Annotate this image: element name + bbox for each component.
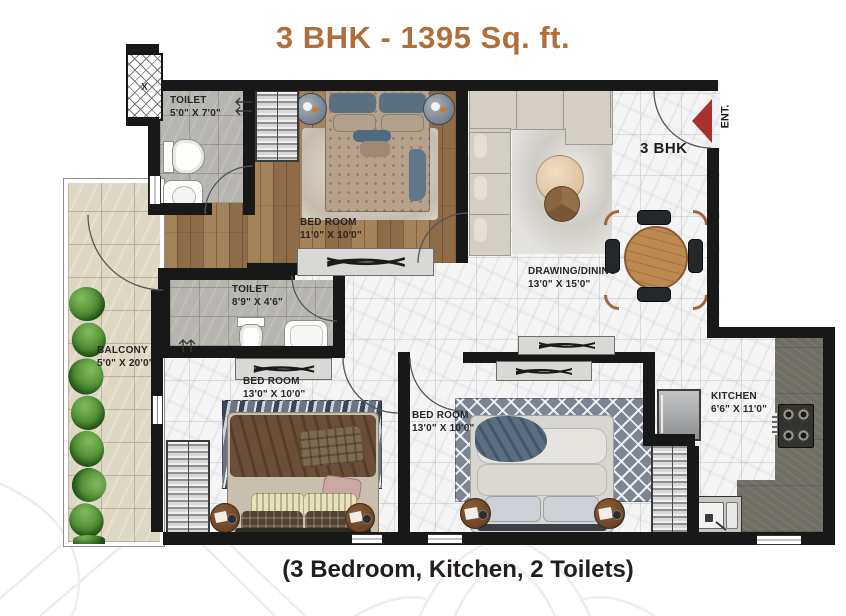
wall-toilet2-left xyxy=(158,268,170,358)
elevator-label: X xyxy=(141,82,148,93)
fridge-handle xyxy=(661,395,663,433)
toilet1-label: TOILET 5'0" X 7'0" xyxy=(170,95,221,120)
bedside-table xyxy=(460,498,491,529)
room-name: BALCONY xyxy=(97,345,154,358)
bed-pillow xyxy=(543,496,599,522)
window xyxy=(152,396,163,424)
bed-throw-blue xyxy=(475,416,547,462)
room-name: TOILET xyxy=(232,284,283,297)
book xyxy=(598,507,613,520)
toilet2-label: TOILET 8'9" X 4'6" xyxy=(232,284,283,309)
bedroom1-wardrobe xyxy=(255,90,299,162)
wardrobe-shelves xyxy=(653,444,672,534)
bed-pillow-large xyxy=(477,464,607,496)
wardrobe-shelves xyxy=(188,442,209,534)
bedside-table xyxy=(594,498,625,529)
wardrobe-shelves xyxy=(168,442,188,534)
room-dims: 13'0" X 10'0" xyxy=(243,389,305,402)
toilet1-wc-bowl xyxy=(172,139,205,174)
window xyxy=(149,176,161,204)
entrance-arrow-icon xyxy=(692,99,712,143)
livingroom-tv-unit xyxy=(518,336,615,355)
camera xyxy=(362,514,372,524)
floor-plan-page: 3 BHK - 1395 Sq. ft. xyxy=(0,0,846,616)
wall-kitchen-left-lower xyxy=(687,446,699,532)
tv-icon xyxy=(244,362,324,376)
bed-pillow xyxy=(379,93,426,113)
wall-toilet2-right xyxy=(333,268,345,358)
plan-subtitle: (3 Bedroom, Kitchen, 2 Toilets) xyxy=(70,556,846,584)
stove-knobs xyxy=(772,413,777,435)
bedroom3-tv-unit xyxy=(496,361,592,381)
sink-drainboard xyxy=(726,502,738,529)
basin-bowl xyxy=(290,325,323,348)
wall-right-upper xyxy=(707,148,719,338)
room-name: BED ROOM xyxy=(300,217,362,230)
wall-bedroom2-3-divider xyxy=(398,352,410,532)
bedside-table xyxy=(295,93,327,125)
tv-icon xyxy=(504,365,584,378)
camera xyxy=(612,510,622,520)
burner xyxy=(797,408,810,421)
book xyxy=(349,511,363,523)
unit-type-label: 3 BHK xyxy=(640,140,688,157)
wall-toilet2-bottom xyxy=(158,346,345,358)
room-dims: 11'0" X 10'0" xyxy=(300,230,362,243)
plate xyxy=(303,102,312,111)
room-dims: 13'0" X 10'0" xyxy=(412,423,474,436)
plate xyxy=(312,107,318,113)
bed-headboard xyxy=(477,524,607,531)
burner xyxy=(782,408,795,421)
drawing-dining-label: DRAWING/DINING 13'0" X 15'0" xyxy=(528,266,617,291)
burner xyxy=(782,429,795,442)
room-name: KITCHEN xyxy=(711,391,767,404)
dining-chair xyxy=(637,210,671,225)
bed-pillow xyxy=(485,496,541,522)
room-name: DRAWING/DINING xyxy=(528,266,617,279)
kitchen-counter-bottom xyxy=(737,480,823,532)
bed-plaid-throw xyxy=(298,426,363,468)
wardrobe-shelves xyxy=(277,92,298,160)
room-dims: 8'9" X 4'6" xyxy=(232,297,283,310)
wall-bedroom1-living-divider xyxy=(456,91,468,263)
plate xyxy=(440,107,446,113)
bedroom2-label: BED ROOM 13'0" X 10'0" xyxy=(243,376,305,401)
coffee-table-small xyxy=(544,186,580,222)
wall-toilet1-right xyxy=(243,91,255,215)
tv-icon xyxy=(527,339,607,352)
bedroom1-bed xyxy=(325,88,430,212)
bedroom3-bed xyxy=(470,415,614,533)
room-name: BED ROOM xyxy=(243,376,305,389)
room-name: TOILET xyxy=(170,95,221,108)
bedroom3-label: BED ROOM 13'0" X 10'0" xyxy=(412,410,474,435)
wall-kitchen-right xyxy=(823,327,835,545)
wall-toilet1-bottom xyxy=(148,203,212,215)
sofa-cushion xyxy=(474,176,487,200)
sofa-chaise xyxy=(565,128,613,145)
entrance-label: ENT. xyxy=(720,95,733,139)
plate xyxy=(431,102,440,111)
plant xyxy=(73,535,105,544)
room-name: BED ROOM xyxy=(412,410,474,423)
elevator-wall-cap-bottom xyxy=(126,117,159,126)
tv-icon xyxy=(310,253,422,271)
dining-chair xyxy=(688,239,703,273)
bed-pillow xyxy=(329,93,376,113)
sink-drain xyxy=(705,514,713,522)
book xyxy=(464,507,479,520)
balcony-label: BALCONY 5'0" X 20'0" xyxy=(97,345,154,370)
wall-bottom xyxy=(163,532,835,545)
sofa-cushion xyxy=(474,134,487,158)
room-dims: 5'0" X 20'0" xyxy=(97,358,154,371)
wall-top xyxy=(148,80,718,91)
camera xyxy=(227,514,237,524)
dining-table xyxy=(624,226,688,290)
plant xyxy=(69,287,105,321)
wall-kitchen-top xyxy=(712,327,835,338)
window xyxy=(757,535,801,545)
window xyxy=(352,534,382,544)
bed-pillow xyxy=(381,114,424,132)
room-dims: 6'6" X 11'0" xyxy=(711,404,767,417)
wardrobe-shelves xyxy=(257,92,277,160)
dining-chair xyxy=(637,287,671,302)
bed-throw xyxy=(409,149,426,201)
sofa-top-section xyxy=(469,90,613,130)
bedroom2-wardrobe xyxy=(166,440,210,536)
kitchen-label: KITCHEN 6'6" X 11'0" xyxy=(711,391,767,416)
wall-toilet2-top xyxy=(158,268,295,280)
book xyxy=(214,511,228,523)
bedside-table xyxy=(345,503,375,533)
kitchen-stove xyxy=(778,404,814,448)
burner xyxy=(797,429,810,442)
bedside-table xyxy=(210,503,240,533)
camera xyxy=(478,510,488,520)
watermark-lotus-leaf xyxy=(355,597,655,616)
wall-kitchen-step xyxy=(643,434,695,446)
window xyxy=(428,534,462,544)
wall-kitchen-left-upper xyxy=(643,352,655,441)
bed-cushion xyxy=(360,141,390,157)
bedroom1-tv-unit xyxy=(297,248,434,276)
elevator-shaft: X xyxy=(126,53,163,121)
sofa-cushion xyxy=(474,218,487,242)
bedside-table xyxy=(423,93,455,125)
room-dims: 5'0" X 7'0" xyxy=(170,108,221,121)
room-dims: 13'0" X 15'0" xyxy=(528,279,617,292)
bedroom1-label: BED ROOM 11'0" X 10'0" xyxy=(300,217,362,242)
page-title: 3 BHK - 1395 Sq. ft. xyxy=(0,20,846,56)
